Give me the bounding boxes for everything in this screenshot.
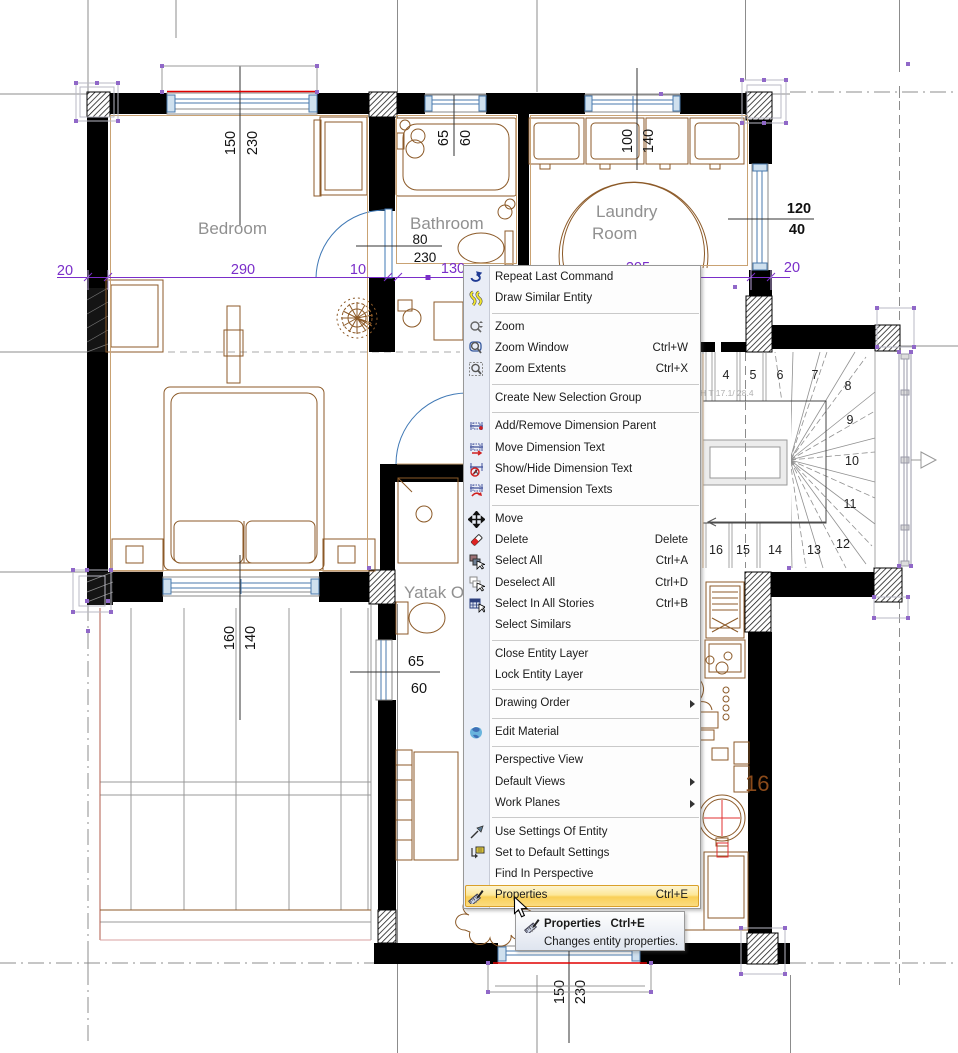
svg-text:65: 65 xyxy=(408,654,424,670)
svg-text:20: 20 xyxy=(784,260,800,276)
svg-text:140: 140 xyxy=(641,129,657,153)
svg-text:6: 6 xyxy=(777,368,784,382)
svg-text:290: 290 xyxy=(231,262,255,278)
svg-text:Room: Room xyxy=(592,224,637,243)
svg-text:14: 14 xyxy=(768,543,782,557)
svg-text:140: 140 xyxy=(243,626,259,650)
svg-text:A: A xyxy=(474,469,479,476)
svg-text:20: 20 xyxy=(57,263,73,279)
svg-text:160: 160 xyxy=(222,626,238,650)
svg-text:60: 60 xyxy=(458,130,474,146)
svg-text:60: 60 xyxy=(411,681,427,697)
svg-text:9: 9 xyxy=(847,413,854,427)
svg-text:15: 15 xyxy=(736,543,750,557)
svg-text:H T 17.1/ 28.4: H T 17.1/ 28.4 xyxy=(700,388,754,398)
svg-text:65: 65 xyxy=(436,130,452,146)
svg-text:150: 150 xyxy=(223,131,239,155)
svg-text:Bedroom: Bedroom xyxy=(198,219,267,238)
svg-text:10: 10 xyxy=(350,262,366,278)
svg-text:120: 120 xyxy=(787,201,811,217)
svg-text:11: 11 xyxy=(844,497,857,511)
svg-text:80: 80 xyxy=(412,232,427,247)
svg-text:12: 12 xyxy=(836,537,850,551)
svg-text:16: 16 xyxy=(745,771,769,796)
svg-text:230: 230 xyxy=(245,131,261,155)
svg-text:7: 7 xyxy=(812,368,819,382)
svg-text:8: 8 xyxy=(845,379,852,393)
svg-text:230: 230 xyxy=(414,250,437,265)
svg-text:16: 16 xyxy=(709,543,723,557)
svg-text:13: 13 xyxy=(807,543,821,557)
svg-text:Bathroom: Bathroom xyxy=(410,214,484,233)
svg-text:5: 5 xyxy=(750,368,757,382)
svg-text:10: 10 xyxy=(845,454,859,468)
svg-text:Laundry: Laundry xyxy=(596,202,658,221)
svg-text:130: 130 xyxy=(441,261,465,277)
svg-text:100: 100 xyxy=(620,129,636,153)
svg-text:4: 4 xyxy=(723,368,730,382)
svg-text:40: 40 xyxy=(789,222,805,238)
